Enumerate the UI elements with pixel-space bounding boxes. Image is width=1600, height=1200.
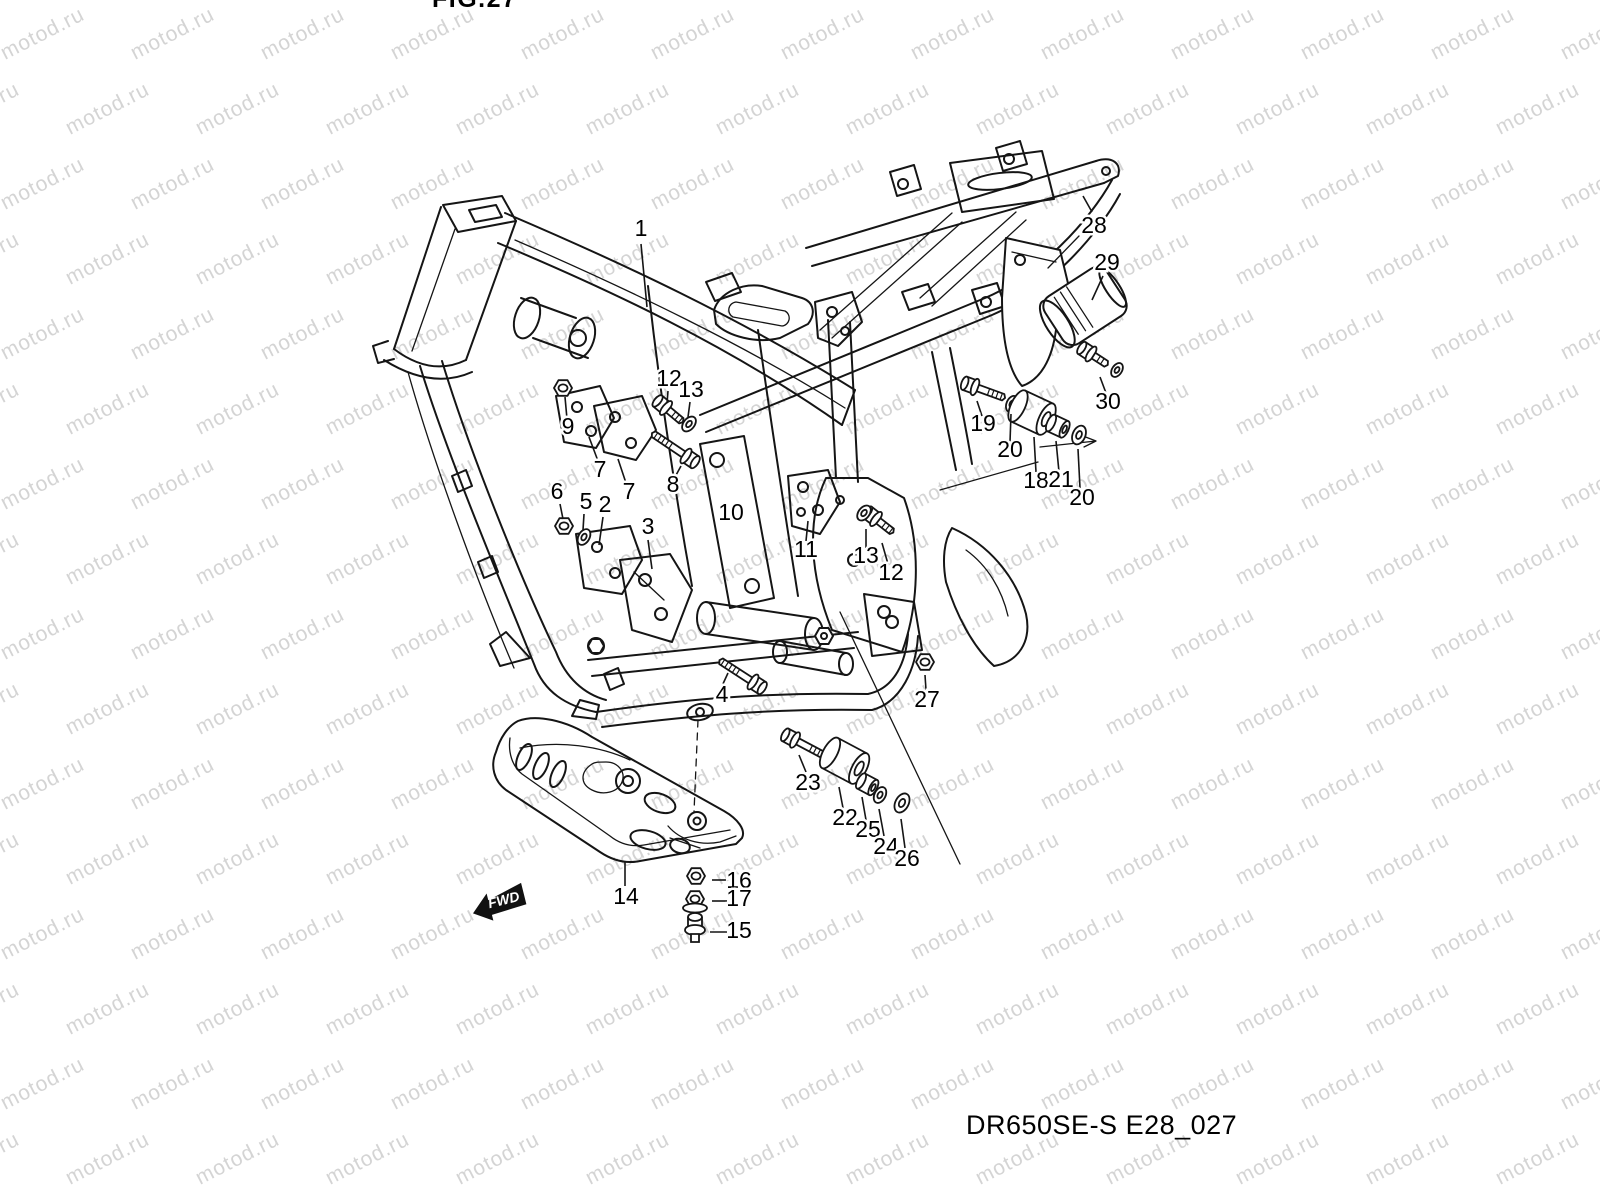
watermark-text: motod.ru (322, 828, 413, 890)
callout-14: 14 (613, 883, 639, 909)
callout-3: 3 (642, 513, 655, 539)
watermark-text: motod.ru (1102, 978, 1193, 1040)
watermark-text: motod.ru (907, 753, 998, 815)
watermark-text: motod.ru (1167, 153, 1258, 215)
watermark-text: motod.ru (1427, 1053, 1518, 1115)
callout-leader (1083, 196, 1092, 212)
watermark-text: motod.ru (1427, 303, 1518, 365)
watermark-text: motod.ru (1557, 303, 1600, 365)
watermark-text: motod.ru (387, 3, 478, 65)
watermark-text: motod.ru (647, 153, 738, 215)
watermark-text: motod.ru (0, 228, 23, 290)
watermark-text: motod.ru (322, 678, 413, 740)
callout-leader (560, 504, 563, 519)
callout-29: 29 (1094, 249, 1120, 275)
watermark-text: motod.ru (517, 153, 608, 215)
watermark-text: motod.ru (257, 453, 348, 515)
watermark-text: motod.ru (452, 1128, 543, 1190)
watermark-text: motod.ru (452, 528, 543, 590)
watermark-text: motod.ru (517, 903, 608, 965)
watermark-text: motod.ru (127, 903, 218, 965)
watermark-text: motod.ru (1297, 3, 1388, 65)
watermark-text: motod.ru (647, 603, 738, 665)
callout-26: 26 (894, 845, 920, 871)
watermark-text: motod.ru (1427, 453, 1518, 515)
watermark-text: motod.ru (62, 378, 153, 440)
watermark-text: motod.ru (777, 153, 868, 215)
watermark-text: motod.ru (1102, 528, 1193, 590)
watermark-text: motod.ru (647, 3, 738, 65)
callout-30: 30 (1095, 388, 1121, 414)
watermark-text: motod.ru (907, 453, 998, 515)
watermark-text: motod.ru (1492, 378, 1583, 440)
watermark-text: motod.ru (777, 1053, 868, 1115)
callout-10: 10 (718, 499, 744, 525)
watermark-text: motod.ru (257, 1053, 348, 1115)
watermark-layer: motod.rumotod.rumotod.rumotod.rumotod.ru… (0, 0, 1600, 1200)
watermark-text: motod.ru (0, 303, 88, 365)
watermark-text: motod.ru (1297, 453, 1388, 515)
watermark-text: motod.ru (1492, 1128, 1583, 1190)
callout-15: 15 (726, 917, 752, 943)
watermark-text: motod.ru (62, 528, 153, 590)
watermark-text: motod.ru (1362, 528, 1453, 590)
watermark-text: motod.ru (0, 753, 88, 815)
watermark-text: motod.ru (192, 828, 283, 890)
watermark-text: motod.ru (1362, 78, 1453, 140)
watermark-text: motod.ru (257, 603, 348, 665)
watermark-text: motod.ru (1167, 603, 1258, 665)
watermark-text: motod.ru (972, 678, 1063, 740)
watermark-text: motod.ru (1167, 1053, 1258, 1115)
watermark-text: motod.ru (1427, 753, 1518, 815)
watermark-text: motod.ru (712, 978, 803, 1040)
watermark-text: motod.ru (1232, 978, 1323, 1040)
fwd-arrow: FWD (469, 883, 529, 925)
callout-19: 19 (970, 410, 996, 436)
watermark-text: motod.ru (1297, 153, 1388, 215)
watermark-text: motod.ru (1232, 228, 1323, 290)
callout-17: 17 (726, 885, 752, 911)
watermark-text: motod.ru (322, 228, 413, 290)
watermark-text: motod.ru (387, 603, 478, 665)
bolt-part (647, 426, 702, 471)
washer-part (1109, 361, 1126, 379)
callout-5: 5 (580, 488, 593, 514)
watermark-text: motod.ru (192, 678, 283, 740)
watermark-text: motod.ru (127, 153, 218, 215)
callout-20: 20 (997, 436, 1023, 462)
watermark-text: motod.ru (62, 828, 153, 890)
watermark-text: motod.ru (1492, 678, 1583, 740)
bolt-part (1074, 339, 1112, 372)
callout-27: 27 (914, 686, 940, 712)
watermark-text: motod.ru (322, 528, 413, 590)
watermark-text: motod.ru (1232, 378, 1323, 440)
watermark-text: motod.ru (62, 978, 153, 1040)
watermark-text: motod.ru (192, 228, 283, 290)
callout-9: 9 (562, 413, 575, 439)
watermark-text: motod.ru (1492, 828, 1583, 890)
watermark-text: motod.ru (452, 978, 543, 1040)
watermark-text: motod.ru (0, 978, 23, 1040)
watermark-text: motod.ru (127, 453, 218, 515)
bolt-part (959, 374, 1008, 406)
watermark-text: motod.ru (1037, 603, 1128, 665)
watermark-text: motod.ru (1362, 678, 1453, 740)
watermark-text: motod.ru (62, 678, 153, 740)
watermark-text: motod.ru (62, 1128, 153, 1190)
callout-13: 13 (853, 542, 879, 568)
watermark-text: motod.ru (1492, 228, 1583, 290)
watermark-text: motod.ru (322, 378, 413, 440)
watermark-text: motod.ru (1557, 3, 1600, 65)
watermark-text: motod.ru (712, 228, 803, 290)
watermark-text: motod.ru (1362, 1128, 1453, 1190)
watermark-text: motod.ru (257, 753, 348, 815)
callout-7: 7 (623, 478, 636, 504)
callout-leader (583, 514, 584, 530)
nut-part (555, 518, 573, 534)
callout-leader (688, 402, 690, 417)
watermark-text: motod.ru (1557, 153, 1600, 215)
watermark-text: motod.ru (1492, 528, 1583, 590)
watermark-text: motod.ru (0, 828, 23, 890)
watermark-text: motod.ru (842, 1128, 933, 1190)
watermark-text: motod.ru (322, 78, 413, 140)
watermark-text: motod.ru (972, 978, 1063, 1040)
watermark-text: motod.ru (62, 78, 153, 140)
callout-8: 8 (667, 471, 680, 497)
watermark-text: motod.ru (582, 78, 673, 140)
watermark-text: motod.ru (1557, 603, 1600, 665)
watermark-text: motod.ru (517, 1053, 608, 1115)
watermark-text: motod.ru (842, 78, 933, 140)
watermark-text: motod.ru (1167, 903, 1258, 965)
callout-6: 6 (551, 478, 564, 504)
watermark-text: motod.ru (907, 3, 998, 65)
watermark-text: motod.ru (257, 3, 348, 65)
watermark-text: motod.ru (1362, 828, 1453, 890)
watermark-text: motod.ru (1037, 753, 1128, 815)
watermark-text: motod.ru (1167, 753, 1258, 815)
watermark-text: motod.ru (1297, 1053, 1388, 1115)
watermark-text: motod.ru (907, 1053, 998, 1115)
watermark-text: motod.ru (322, 978, 413, 1040)
watermark-text: motod.ru (387, 303, 478, 365)
watermark-text: motod.ru (647, 753, 738, 815)
watermark-text: motod.ru (842, 978, 933, 1040)
callout-13: 13 (678, 376, 704, 402)
diagram-page: FIG.27 motod.rumotod.rumotod.rumotod.rum… (0, 0, 1600, 1200)
watermark-text: motod.ru (1557, 1053, 1600, 1115)
watermark-text: motod.ru (387, 1053, 478, 1115)
callout-18: 18 (1023, 467, 1049, 493)
watermark-text: motod.ru (1427, 153, 1518, 215)
callout-22: 22 (832, 804, 858, 830)
watermark-text: motod.ru (1102, 828, 1193, 890)
watermark-text: motod.ru (842, 228, 933, 290)
watermark-text: motod.ru (1232, 528, 1323, 590)
watermark-text: motod.ru (1492, 78, 1583, 140)
watermark-text: motod.ru (1232, 828, 1323, 890)
watermark-text: motod.ru (387, 153, 478, 215)
watermark-text: motod.ru (1297, 903, 1388, 965)
watermark-text: motod.ru (127, 753, 218, 815)
watermark-text: motod.ru (1037, 903, 1128, 965)
callout-12: 12 (878, 559, 904, 585)
watermark-text: motod.ru (192, 528, 283, 590)
watermark-text: motod.ru (712, 1128, 803, 1190)
callout-11: 11 (794, 536, 818, 562)
watermark-text: motod.ru (1362, 978, 1453, 1040)
watermark-text: motod.ru (452, 228, 543, 290)
callout-leader (667, 391, 668, 403)
watermark-text: motod.ru (0, 378, 23, 440)
watermark-text: motod.ru (452, 678, 543, 740)
nut-part (554, 380, 572, 396)
watermark-text: motod.ru (1557, 753, 1600, 815)
watermark-text: motod.ru (257, 153, 348, 215)
watermark-text: motod.ru (257, 903, 348, 965)
callout-2: 2 (599, 491, 612, 517)
watermark-text: motod.ru (582, 828, 673, 890)
watermark-text: motod.ru (387, 753, 478, 815)
watermark-text: motod.ru (0, 153, 88, 215)
watermark-text: motod.ru (582, 1128, 673, 1190)
nut-part (687, 868, 705, 884)
watermark-text: motod.ru (1102, 678, 1193, 740)
watermark-text: motod.ru (972, 78, 1063, 140)
callout-28: 28 (1081, 212, 1107, 238)
watermark-text: motod.ru (0, 1053, 88, 1115)
watermark-text: motod.ru (1297, 753, 1388, 815)
watermark-text: motod.ru (0, 678, 23, 740)
watermark-text: motod.ru (1167, 453, 1258, 515)
watermark-text: motod.ru (1232, 78, 1323, 140)
watermark-text: motod.ru (1492, 978, 1583, 1040)
watermark-text: motod.ru (62, 228, 153, 290)
watermark-text: motod.ru (777, 903, 868, 965)
watermark-text: motod.ru (387, 453, 478, 515)
watermark-text: motod.ru (0, 603, 88, 665)
watermark-text: motod.ru (1297, 303, 1388, 365)
watermark-text: motod.ru (192, 78, 283, 140)
watermark-text: motod.ru (452, 78, 543, 140)
watermark-text: motod.ru (517, 3, 608, 65)
callout-1: 1 (635, 215, 648, 241)
watermark-text: motod.ru (582, 228, 673, 290)
watermark-text: motod.ru (647, 1053, 738, 1115)
watermark-text: motod.ru (127, 1053, 218, 1115)
watermark-text: motod.ru (127, 303, 218, 365)
watermark-text: motod.ru (1362, 228, 1453, 290)
watermark-text: motod.ru (127, 3, 218, 65)
watermark-text: motod.ru (1037, 3, 1128, 65)
callout-7: 7 (594, 456, 607, 482)
watermark-text: motod.ru (127, 603, 218, 665)
watermark-text: motod.ru (1427, 903, 1518, 965)
watermark-text: motod.ru (1232, 1128, 1323, 1190)
watermark-text: motod.ru (192, 978, 283, 1040)
watermark-text: motod.ru (387, 903, 478, 965)
watermark-text: motod.ru (322, 1128, 413, 1190)
watermark-text: motod.ru (0, 78, 23, 140)
watermark-text: motod.ru (192, 1128, 283, 1190)
watermark-text: motod.ru (1297, 603, 1388, 665)
watermark-text: motod.ru (972, 828, 1063, 890)
watermark-text: motod.ru (0, 903, 88, 965)
watermark-text: motod.ru (1167, 3, 1258, 65)
watermark-text: motod.ru (1167, 303, 1258, 365)
watermark-text: motod.ru (257, 303, 348, 365)
watermark-text: motod.ru (0, 3, 88, 65)
watermark-text: motod.ru (0, 528, 23, 590)
nut-part (916, 654, 934, 670)
watermark-text: motod.ru (1362, 378, 1453, 440)
watermark-text: motod.ru (192, 378, 283, 440)
watermark-text: motod.ru (907, 903, 998, 965)
watermark-text: motod.ru (1232, 678, 1323, 740)
watermark-text: motod.ru (1557, 903, 1600, 965)
callout-4: 4 (716, 681, 729, 707)
document-code: DR650SE-S E28_027 (966, 1110, 1237, 1141)
watermark-text: motod.ru (582, 978, 673, 1040)
down-tubes-and-rails (408, 361, 918, 812)
callout-23: 23 (795, 769, 821, 795)
watermark-text: motod.ru (1102, 78, 1193, 140)
watermark-text: motod.ru (1427, 3, 1518, 65)
fwd-arrow-label: FWD (486, 888, 521, 911)
watermark-text: motod.ru (0, 1128, 23, 1190)
watermark-text: motod.ru (777, 3, 868, 65)
watermark-text: motod.ru (0, 453, 88, 515)
parts-diagram: motod.rumotod.rumotod.rumotod.rumotod.ru… (0, 0, 1600, 1200)
watermark-text: motod.ru (1037, 1053, 1128, 1115)
watermark-text: motod.ru (452, 828, 543, 890)
watermark-text: motod.ru (712, 378, 803, 440)
watermark-text: motod.ru (1557, 453, 1600, 515)
watermark-text: motod.ru (712, 78, 803, 140)
watermark-text: motod.ru (1427, 603, 1518, 665)
watermark-text: motod.ru (972, 528, 1063, 590)
callout-20: 20 (1069, 484, 1095, 510)
